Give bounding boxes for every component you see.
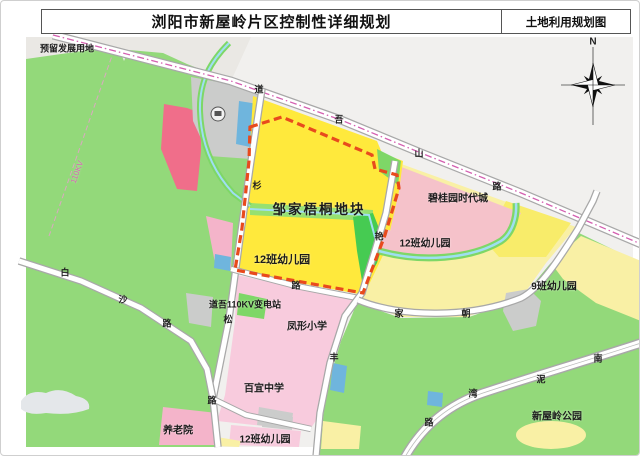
compass-north-label: N bbox=[589, 37, 596, 48]
page-title: 浏阳市新屋岭片区控制性详细规划 bbox=[42, 10, 501, 33]
label-park: 新屋岭公园 bbox=[532, 408, 582, 423]
map-type-label: 土地利用规划图 bbox=[501, 10, 630, 33]
label-plot-name: 邹家梧桐地块 bbox=[273, 198, 366, 218]
road-char-nanniwan-4: 路 bbox=[424, 416, 433, 429]
road-char-nanniwan-2: 泥 bbox=[536, 373, 545, 386]
road-char-nanniwan-3: 湾 bbox=[468, 387, 477, 400]
road-char-chaojia-1: 家 bbox=[394, 307, 403, 320]
land-use-map: 预留发展用地 邹家梧桐地块 12班幼儿园 12班幼儿园 碧桂园时代城 9班幼儿园… bbox=[1, 1, 640, 456]
region-yellow-blob-bottom bbox=[516, 421, 586, 449]
header-bar: 浏阳市新屋岭片区控制性详细规划 土地利用规划图 bbox=[41, 9, 631, 34]
label-middle-school: 百宜中学 bbox=[244, 380, 284, 395]
road-char-nanniwan-1: 南 bbox=[593, 352, 602, 365]
road-char-daowushan-4: 路 bbox=[492, 180, 501, 193]
road-char-shansong-3: 路 bbox=[207, 394, 216, 407]
road-char-shansong-2: 松 bbox=[223, 313, 232, 326]
label-kindergarten-south: 12班幼儿园 bbox=[239, 431, 290, 446]
facility-circle-glyph bbox=[215, 111, 222, 116]
road-char-daowushan-3: 山 bbox=[414, 147, 423, 160]
road-char-yanfeng-1: 艳 bbox=[374, 230, 383, 243]
road-char-baisha-2: 沙 bbox=[118, 293, 127, 306]
label-kindergarten-west: 12班幼儿园 bbox=[254, 251, 310, 267]
road-char-east-link-1: 路 bbox=[291, 279, 300, 292]
road-char-daowushan-2: 吾 bbox=[334, 113, 343, 126]
label-primary-school: 凤形小学 bbox=[287, 318, 327, 333]
road-char-yanfeng-2: 丰 bbox=[329, 351, 338, 364]
road-char-baisha-3: 路 bbox=[162, 317, 171, 330]
road-char-shansong-1: 杉 bbox=[252, 179, 261, 192]
label-substation: 道吾110KV变电站 bbox=[209, 298, 281, 311]
label-country-garden: 碧桂园时代城 bbox=[428, 190, 488, 205]
map-canvas bbox=[1, 1, 640, 456]
road-char-chaojia-2: 朝 bbox=[461, 307, 470, 320]
planning-map-page: 浏阳市新屋岭片区控制性详细规划 土地利用规划图 bbox=[0, 0, 640, 456]
label-kindergarten-9class: 9班幼儿园 bbox=[531, 278, 577, 293]
region-blue-west-strip bbox=[214, 254, 231, 271]
label-nursing-home: 养老院 bbox=[163, 422, 193, 437]
label-reserved-land: 预留发展用地 bbox=[40, 42, 94, 55]
road-char-daowushan-1: 道 bbox=[254, 83, 263, 96]
region-blue-bottom bbox=[427, 391, 443, 407]
road-char-baisha-1: 白 bbox=[60, 266, 69, 279]
label-kindergarten-east: 12班幼儿园 bbox=[399, 235, 450, 250]
